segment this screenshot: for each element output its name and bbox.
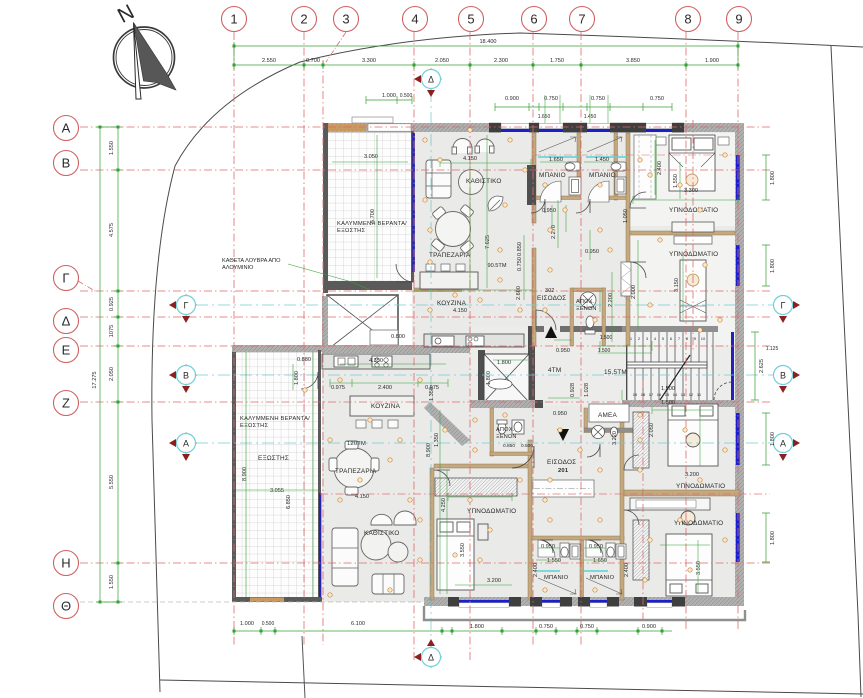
svg-text:2.550: 2.550 xyxy=(262,58,276,64)
svg-text:3.550: 3.550 xyxy=(460,543,466,557)
svg-text:0.900: 0.900 xyxy=(505,96,519,102)
svg-text:0.880: 0.880 xyxy=(297,357,311,363)
svg-text:3.220: 3.220 xyxy=(612,431,618,445)
svg-text:4.150: 4.150 xyxy=(463,156,477,162)
svg-text:3.300: 3.300 xyxy=(684,188,698,194)
svg-text:0.750: 0.750 xyxy=(517,257,523,271)
svg-text:3.150: 3.150 xyxy=(674,278,680,292)
svg-text:10: 10 xyxy=(701,336,706,341)
svg-text:90.5ΤΜ: 90.5ΤΜ xyxy=(488,263,507,269)
svg-text:1.000: 1.000 xyxy=(240,621,254,627)
svg-text:Ζ: Ζ xyxy=(62,396,70,411)
svg-text:3.055: 3.055 xyxy=(270,488,284,494)
svg-text:ΕΞΩΣΤΗΣ: ΕΞΩΣΤΗΣ xyxy=(337,228,365,234)
svg-text:17.275: 17.275 xyxy=(92,371,98,388)
svg-text:В: В xyxy=(62,156,71,171)
svg-text:19: 19 xyxy=(633,392,638,397)
svg-text:1.125: 1.125 xyxy=(766,346,779,352)
svg-text:2.050: 2.050 xyxy=(649,423,655,437)
svg-text:2.400: 2.400 xyxy=(624,563,630,577)
svg-text:ΚΑΘΕΤΑ ΛΟΥΒΡΑ ΑΠΟ: ΚΑΘΕΤΑ ΛΟΥΒΡΑ ΑΠΟ xyxy=(222,258,281,264)
svg-text:ΚΑΘΙΣΤΙΚΟ: ΚΑΘΙΣΤΙΚΟ xyxy=(466,178,502,185)
svg-text:1.500: 1.500 xyxy=(661,400,675,406)
svg-text:1.028: 1.028 xyxy=(584,383,590,397)
svg-text:1.650: 1.650 xyxy=(593,558,607,564)
svg-text:0.950: 0.950 xyxy=(556,348,570,354)
svg-text:ΥΠΝΟΔΩΜΑΤΙΟ: ΥΠΝΟΔΩΜΑΤΙΟ xyxy=(669,251,718,258)
svg-text:3.200: 3.200 xyxy=(487,578,501,584)
svg-text:0.750: 0.750 xyxy=(580,624,594,630)
svg-text:ΥΠΝΟΔΩΜΑΤΙΟ: ΥΠΝΟΔΩΜΑΤΙΟ xyxy=(467,508,516,515)
svg-text:4: 4 xyxy=(411,12,418,27)
svg-text:4.250: 4.250 xyxy=(441,498,447,512)
svg-text:2.600: 2.600 xyxy=(516,286,522,300)
svg-text:6: 6 xyxy=(530,12,537,27)
svg-text:ΑΛΟΥΜΙΝΙΟ: ΑΛΟΥΜΙΝΙΟ xyxy=(222,265,254,271)
svg-text:ΚΟΥΖΙΝΑ: ΚΟΥΖΙΝΑ xyxy=(371,403,401,410)
svg-text:5.700: 5.700 xyxy=(370,209,376,223)
svg-text:Γ: Γ xyxy=(781,301,786,311)
svg-text:1.800: 1.800 xyxy=(486,371,492,385)
svg-text:2.050: 2.050 xyxy=(435,58,449,64)
svg-text:0.700: 0.700 xyxy=(306,58,320,64)
svg-text:ΜΠΑΝΙΟ: ΜΠΑΝΙΟ xyxy=(539,172,566,179)
svg-text:1075: 1075 xyxy=(109,325,115,337)
svg-text:16: 16 xyxy=(657,392,662,397)
svg-text:2.050: 2.050 xyxy=(109,367,115,381)
svg-text:0.500: 0.500 xyxy=(262,621,275,627)
svg-text:1.550: 1.550 xyxy=(547,558,561,564)
svg-text:8.900: 8.900 xyxy=(426,443,432,457)
svg-text:1.500: 1.500 xyxy=(600,335,613,341)
svg-text:6.100: 6.100 xyxy=(351,621,365,627)
svg-text:1.350: 1.350 xyxy=(429,387,435,401)
svg-text:4.150: 4.150 xyxy=(453,308,467,314)
svg-text:Δ: Δ xyxy=(62,314,71,329)
svg-text:0.950: 0.950 xyxy=(541,544,555,550)
svg-text:2.400: 2.400 xyxy=(533,563,539,577)
svg-text:ΑΜΕΑ: ΑΜΕΑ xyxy=(598,412,617,419)
svg-text:ΤΡΑΠΕΖΑΡΙΑ: ΤΡΑΠΕΖΑΡΙΑ xyxy=(429,252,471,259)
svg-text:1.900: 1.900 xyxy=(705,58,719,64)
svg-text:5: 5 xyxy=(467,12,474,27)
svg-text:0.925: 0.925 xyxy=(109,297,115,311)
svg-text:14: 14 xyxy=(673,392,678,397)
svg-text:2.300: 2.300 xyxy=(494,58,508,64)
svg-text:ΜΠΑΝΙΟ: ΜΠΑΝΙΟ xyxy=(589,172,616,179)
svg-text:0.850: 0.850 xyxy=(517,242,523,256)
svg-text:1.750: 1.750 xyxy=(550,58,564,64)
svg-text:0.950: 0.950 xyxy=(585,249,599,255)
svg-text:ΕΞΩΣΤΗΣ: ΕΞΩΣΤΗΣ xyxy=(258,455,289,462)
svg-text:12: 12 xyxy=(689,392,694,397)
svg-text:1.000: 1.000 xyxy=(382,93,396,99)
svg-text:ΕΞΩΣΤΗΣ: ΕΞΩΣΤΗΣ xyxy=(240,423,268,429)
svg-text:3: 3 xyxy=(342,12,349,27)
svg-text:18.400: 18.400 xyxy=(479,39,496,45)
svg-text:А: А xyxy=(62,121,71,136)
svg-text:3.550: 3.550 xyxy=(696,561,702,575)
svg-text:Α: Α xyxy=(780,439,786,449)
svg-text:1.350: 1.350 xyxy=(434,433,440,447)
svg-text:1.800: 1.800 xyxy=(497,360,511,366)
svg-text:Β: Β xyxy=(780,371,786,381)
svg-text:0.750: 0.750 xyxy=(544,96,558,102)
svg-text:1.800: 1.800 xyxy=(470,624,484,630)
svg-text:0.975: 0.975 xyxy=(331,385,345,391)
svg-text:ΞΕΝΩΝ: ΞΕΝΩΝ xyxy=(496,434,517,440)
svg-text:2.400: 2.400 xyxy=(657,161,663,175)
svg-text:ΕΙΣΟΔΟΣ: ΕΙΣΟΔΟΣ xyxy=(547,459,576,466)
svg-text:7: 7 xyxy=(578,12,585,27)
svg-text:ΤΡΑΠΕΖΑΡΙΑ: ΤΡΑΠΕΖΑΡΙΑ xyxy=(335,468,377,475)
svg-text:18: 18 xyxy=(641,392,646,397)
svg-text:0.500: 0.500 xyxy=(400,93,413,99)
svg-text:0.500: 0.500 xyxy=(521,443,533,449)
svg-text:1: 1 xyxy=(230,12,237,27)
svg-text:2.000: 2.000 xyxy=(631,285,637,299)
svg-text:ΑΠΟΧ.: ΑΠΟΧ. xyxy=(576,299,595,305)
svg-text:1.800: 1.800 xyxy=(770,171,776,185)
svg-text:Γ: Γ xyxy=(184,301,189,311)
svg-text:ΚΑΘΙΣΤΙΚΟ: ΚΑΘΙΣΤΙΚΟ xyxy=(364,530,400,537)
svg-text:302: 302 xyxy=(545,288,555,294)
svg-text:Α: Α xyxy=(183,439,189,449)
svg-text:Δ: Δ xyxy=(428,653,434,663)
svg-text:ΥΠΝΟΔΩΜΑΤΙΟ: ΥΠΝΟΔΩΜΑΤΙΟ xyxy=(669,207,718,214)
svg-text:0.900: 0.900 xyxy=(642,624,656,630)
svg-text:13: 13 xyxy=(681,392,686,397)
svg-text:Β: Β xyxy=(183,371,189,381)
svg-text:1.800: 1.800 xyxy=(770,259,776,273)
svg-text:ΕΙΣΟΔΟΣ: ΕΙΣΟΔΟΣ xyxy=(537,295,566,302)
svg-text:1.050: 1.050 xyxy=(623,209,629,223)
svg-text:8: 8 xyxy=(684,12,691,27)
svg-text:1.800: 1.800 xyxy=(294,371,300,385)
svg-text:3.850: 3.850 xyxy=(626,58,640,64)
svg-text:ΜΠΑΝΙΟ: ΜΠΑΝΙΟ xyxy=(544,575,569,581)
svg-text:4.350: 4.350 xyxy=(369,358,383,364)
svg-text:Η: Η xyxy=(61,556,70,571)
svg-text:0.750: 0.750 xyxy=(591,96,605,102)
svg-text:Δ: Δ xyxy=(428,75,434,85)
svg-text:ΑΠΟΧ.: ΑΠΟΧ. xyxy=(496,427,515,433)
svg-text:0.850: 0.850 xyxy=(503,443,515,449)
svg-text:2.200: 2.200 xyxy=(608,293,614,307)
svg-text:120ΤΜ: 120ΤΜ xyxy=(347,441,366,447)
svg-text:ΞΕΝΩΝ: ΞΕΝΩΝ xyxy=(576,306,597,312)
svg-text:3.200: 3.200 xyxy=(685,472,699,478)
svg-text:Ε: Ε xyxy=(62,343,71,358)
svg-text:1.550: 1.550 xyxy=(109,141,115,155)
svg-text:201: 201 xyxy=(558,468,569,474)
svg-text:17: 17 xyxy=(649,392,654,397)
svg-text:3.050: 3.050 xyxy=(364,154,378,160)
svg-text:1.650: 1.650 xyxy=(538,114,551,120)
svg-text:1.550: 1.550 xyxy=(109,575,115,589)
svg-text:2.625: 2.625 xyxy=(759,359,765,373)
svg-text:5.550: 5.550 xyxy=(109,475,115,489)
svg-text:9: 9 xyxy=(735,12,742,27)
svg-text:ΜΠΑΝΙΟ: ΜΠΑΝΙΟ xyxy=(590,575,615,581)
svg-text:0.950: 0.950 xyxy=(553,411,567,417)
svg-text:ΥΠΝΟΔΩΜΑΤΙΟ: ΥΠΝΟΔΩΜΑΤΙΟ xyxy=(676,483,725,490)
svg-text:0.750: 0.750 xyxy=(539,624,553,630)
svg-text:7.625: 7.625 xyxy=(485,235,491,249)
svg-text:15: 15 xyxy=(665,392,670,397)
svg-text:3.300: 3.300 xyxy=(362,58,376,64)
svg-text:Γ: Γ xyxy=(62,271,69,286)
svg-text:2: 2 xyxy=(300,12,307,27)
svg-text:6.850: 6.850 xyxy=(286,495,292,509)
svg-text:ΚΟΥΖΙΝΑ: ΚΟΥΖΙΝΑ xyxy=(437,300,467,307)
svg-text:1.800: 1.800 xyxy=(770,531,776,545)
svg-text:0.950: 0.950 xyxy=(589,544,603,550)
svg-text:0.928: 0.928 xyxy=(570,383,576,397)
svg-text:Θ: Θ xyxy=(61,599,71,614)
svg-text:8.900: 8.900 xyxy=(242,467,248,481)
svg-text:1.800: 1.800 xyxy=(770,432,776,446)
svg-text:0.800: 0.800 xyxy=(391,334,405,340)
svg-text:2.400: 2.400 xyxy=(378,385,392,391)
svg-text:ΚΑΛΥΜΜΕΝΗ ΒΕΡΑΝΤΑ/: ΚΑΛΥΜΜΕΝΗ ΒΕΡΑΝΤΑ/ xyxy=(240,416,310,422)
svg-text:4.150: 4.150 xyxy=(355,494,369,500)
svg-text:0.750: 0.750 xyxy=(650,96,664,102)
svg-text:4ΤΜ: 4ΤΜ xyxy=(548,367,561,374)
svg-text:15,5ΤΜ: 15,5ΤΜ xyxy=(604,369,627,376)
svg-text:0.950: 0.950 xyxy=(542,208,556,214)
svg-text:4.575: 4.575 xyxy=(109,223,115,237)
